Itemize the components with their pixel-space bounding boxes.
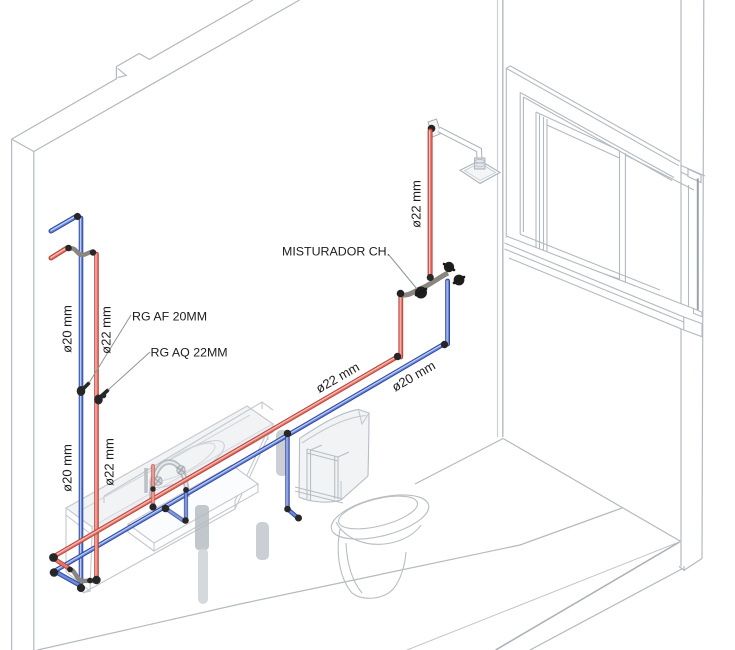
svg-text:ø22 mm: ø22 mm: [98, 306, 113, 354]
svg-text:ø22 mm: ø22 mm: [408, 180, 423, 228]
svg-text:MISTURADOR CH.: MISTURADOR CH.: [282, 245, 390, 259]
svg-text:ø20 mm: ø20 mm: [59, 444, 74, 492]
svg-text:ø20 mm: ø20 mm: [59, 305, 74, 353]
svg-text:RG AF 20MM: RG AF 20MM: [132, 310, 207, 324]
svg-text:RG AQ 22MM: RG AQ 22MM: [151, 346, 228, 360]
svg-text:ø22 mm: ø22 mm: [101, 438, 116, 486]
